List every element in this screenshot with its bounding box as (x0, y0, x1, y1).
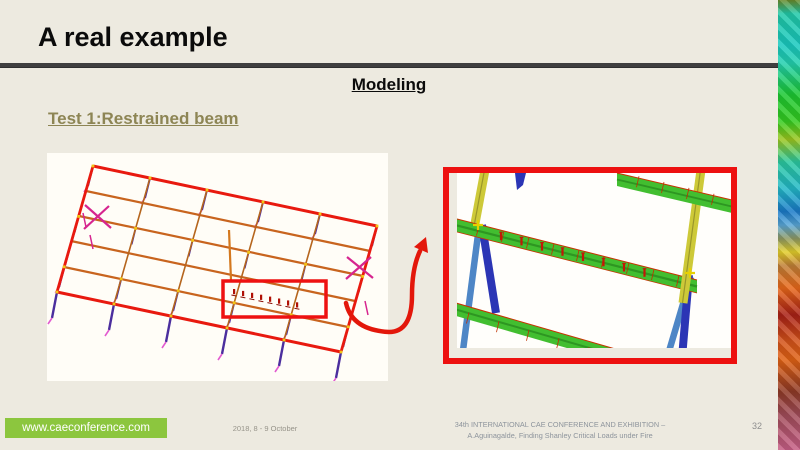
structure-overview-figure (47, 153, 388, 381)
page-title: A real example (38, 22, 228, 53)
section-label: Test 1:Restrained beam (48, 109, 239, 129)
green-beam-top (617, 173, 731, 213)
beam-detail-drawing (457, 173, 731, 348)
beam-detail-figure (443, 167, 737, 364)
presentation-slide: A real example Modeling Test 1:Restraine… (0, 0, 800, 450)
frame-model-drawing (47, 153, 388, 381)
beam-detail-canvas (457, 173, 731, 348)
callout-arrow-icon (340, 230, 435, 340)
footer-conference-line1: 34th INTERNATIONAL CAE CONFERENCE AND EX… (400, 419, 720, 430)
slide-subtitle: Modeling (0, 75, 778, 95)
yellow-member-left (474, 173, 486, 229)
column-stub (515, 173, 526, 190)
green-beam-lower (457, 301, 657, 348)
load-markers (231, 289, 299, 309)
page-number: 32 (745, 421, 769, 431)
website-badge[interactable]: www.caeconference.com (5, 418, 167, 438)
footer-date: 2018, 8 - 9 October (190, 424, 340, 433)
footer-conference-credit: 34th INTERNATIONAL CAE CONFERENCE AND EX… (400, 419, 720, 442)
title-divider (0, 63, 778, 68)
color-mosaic-strip (778, 0, 800, 450)
footer-conference-line2: A.Aguinagalde, Finding Shanley Critical … (400, 430, 720, 441)
joint-markers (473, 220, 695, 278)
hanger-member (229, 230, 231, 280)
frame-grid (57, 166, 377, 352)
